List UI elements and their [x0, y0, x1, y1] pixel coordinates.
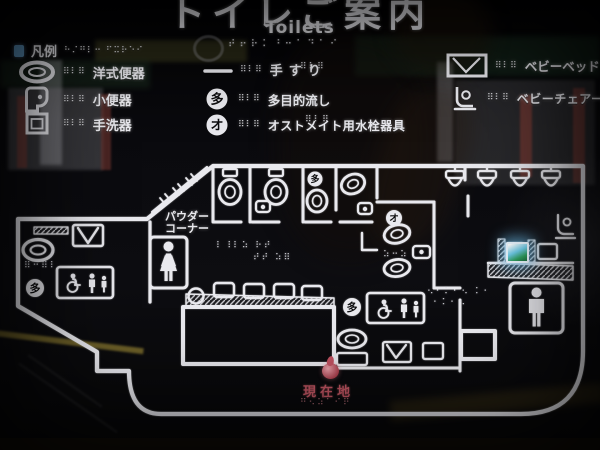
service-block	[183, 307, 334, 364]
sign-title-english: Toilets	[0, 18, 600, 38]
braille-cells: ⠿⠇⠿	[240, 65, 263, 75]
braille-legend-mid-2: ⠿⠇⠿	[305, 115, 331, 125]
accessible-sign-left	[57, 267, 113, 298]
braille-mens-b: ⠂⠅⠂⠢	[433, 298, 467, 308]
legend-label: 多目的流し	[268, 90, 331, 109]
circle-o-icon: オ	[203, 112, 231, 138]
vanity-counter	[186, 283, 334, 308]
left-room-shelf	[34, 227, 68, 234]
svg-text:多: 多	[310, 173, 319, 185]
legend-row-western-toilet: ⠿⠇⠿ 洋式便器	[18, 60, 145, 84]
stall-toilet-1	[219, 169, 241, 205]
braille-cells: ⠿⠇⠿	[63, 67, 86, 77]
mens-entry-walls	[465, 166, 468, 216]
braille-cells: ⠿⠇⠿	[63, 119, 86, 129]
svg-text:多: 多	[347, 300, 358, 314]
child-figure-icon	[414, 301, 419, 318]
urinal-icon	[22, 86, 56, 113]
tactile-toilet-sign: 多	[0, 0, 600, 450]
legend-label: 手洗器	[93, 115, 132, 134]
legend-label: オストメイト用水栓器具	[268, 117, 406, 134]
svg-text:多: 多	[30, 281, 41, 295]
adult-figure-icon	[401, 299, 407, 319]
circle-ta-icon: 多	[203, 86, 231, 112]
braille-left-room: ⠿⠒⠿⠇	[24, 261, 58, 271]
womens-room-icon	[150, 237, 187, 288]
legend-row-hand-basin: ⠿⠇⠿ 手洗器	[22, 112, 132, 136]
western-toilet-icon	[18, 60, 56, 84]
title-braille: ⠞⠖⠗⠅⠘⠒⠁⠙⠁⠊	[228, 39, 341, 50]
braille-legend-mid-1: ⠿⠇⠿	[300, 62, 326, 72]
legend-header: 凡例	[31, 41, 57, 60]
braille-cells: ⠿⠇⠿	[495, 61, 518, 71]
legend-label: ベビーチェアー	[517, 90, 600, 107]
handrail-l	[362, 233, 377, 250]
urinals-row	[446, 166, 560, 186]
stall-toilet-3: 多	[307, 172, 327, 213]
baby-bed-fixture-mid	[383, 342, 411, 362]
powder-corner-label: パウダー コーナー	[165, 211, 209, 235]
legend-row-multi-sink: 多 ⠿⠇⠿ 多目的流し	[203, 86, 330, 112]
wheelchair-icon	[379, 300, 392, 318]
legend-marker-icon	[14, 45, 24, 57]
legend-row-baby-bed: ⠿⠇⠿ ベビーベッド	[446, 53, 600, 78]
legend-header-row: 凡例 ⠓⠌⠛⠇⠒ ⠋⠭⠗⠑⠊	[14, 41, 144, 60]
current-location-label: 現在地	[303, 381, 363, 400]
baby-bed-fixture-left	[73, 225, 103, 246]
mid-toilet-1: オ	[382, 210, 412, 246]
baby-bed-icon	[446, 53, 488, 78]
braille-cells: ⠿⠇⠿	[238, 120, 261, 130]
legend-label: 小便器	[93, 90, 132, 109]
legend-label: ベビーベッド	[525, 56, 600, 75]
svg-text:オ: オ	[389, 213, 399, 224]
baby-chair-icon	[450, 84, 480, 112]
toilet-left-room	[23, 240, 53, 261]
mens-wash-counter	[488, 239, 573, 280]
shaft-room	[461, 331, 495, 359]
mid-lower-fixtures	[337, 330, 443, 365]
baby-chair-fixture	[556, 215, 575, 238]
man-pictogram	[529, 288, 544, 327]
legend-label: 洋式便器	[93, 63, 145, 82]
circle-symbol-mid: 多	[343, 298, 361, 316]
wheelchair-icon	[68, 274, 81, 292]
braille-womens-a: ⠇⠸⠇⠵ ⠗⠞	[216, 241, 272, 251]
braille-cells: ⠿⠇⠿	[487, 93, 510, 103]
light-reflection-glow	[506, 242, 529, 263]
hand-basin-icon	[22, 112, 56, 136]
corner-basin-2	[358, 203, 372, 214]
current-location-marker	[322, 363, 339, 379]
mid-toilet-2	[383, 258, 411, 278]
accessible-sign-mid	[367, 293, 424, 323]
woman-pictogram	[160, 242, 177, 282]
stairs-rail	[152, 167, 207, 212]
braille-cells: ⠿⠇⠿	[238, 94, 261, 104]
braille-mid-room: ⠵⠒⠵	[383, 250, 409, 260]
handrail-icon	[203, 63, 233, 77]
corner-basin-1	[256, 201, 270, 212]
stall-toilet-2	[265, 169, 287, 205]
legend-row-urinal: ⠿⠇⠿ 小便器	[22, 86, 132, 113]
braille-cells: ⠿⠇⠿	[63, 95, 86, 105]
outer-boundary-wall	[18, 166, 583, 414]
child-figure-icon	[102, 276, 107, 293]
mens-room-icon	[510, 283, 563, 333]
legend-row-baby-chair: ⠿⠇⠿ ベビーチェアー	[450, 84, 600, 112]
circle-symbol-left-room: 多	[26, 279, 44, 297]
mid-basin	[413, 246, 430, 258]
legend-header-braille: ⠓⠌⠛⠇⠒ ⠋⠭⠗⠑⠊	[64, 46, 144, 56]
braille-womens-b: ⠞⠞ ⠵⠿	[253, 253, 292, 263]
adult-figure-icon	[89, 274, 95, 294]
braille-mens-a: ⠢⠂⠅⠂⠢ ⠅⠂	[427, 287, 492, 297]
svg-text:オ: オ	[210, 119, 223, 134]
svg-text:多: 多	[210, 92, 223, 108]
powder-corner-line2: コーナー	[165, 223, 209, 235]
stall-toilet-4	[338, 170, 368, 197]
